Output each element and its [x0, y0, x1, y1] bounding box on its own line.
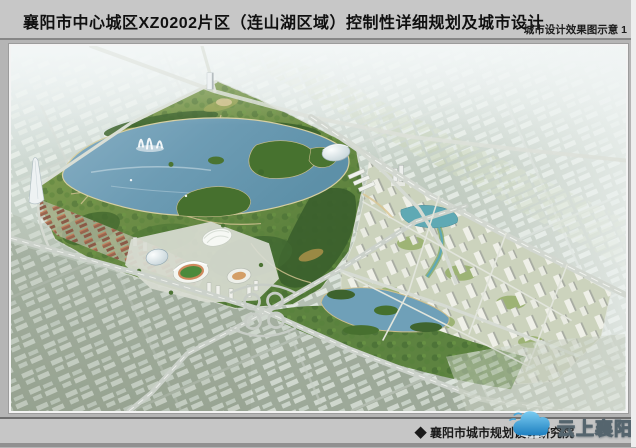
page-title: 襄阳市中心城区XZ0202片区（连山湖区域）控制性详细规划及城市设计 — [23, 9, 544, 33]
rendering-frame — [8, 43, 629, 414]
aerial-rendering — [11, 46, 626, 411]
page-subtitle: 城市设计效果图示意 1 — [524, 22, 627, 37]
cloud-icon — [504, 409, 562, 443]
watermark-text: 云上襄阳 — [557, 415, 633, 441]
page-right-margin — [631, 0, 636, 447]
title-bar: 襄阳市中心城区XZ0202片区（连山湖区域）控制性详细规划及城市设计 城市设计效… — [0, 0, 636, 40]
